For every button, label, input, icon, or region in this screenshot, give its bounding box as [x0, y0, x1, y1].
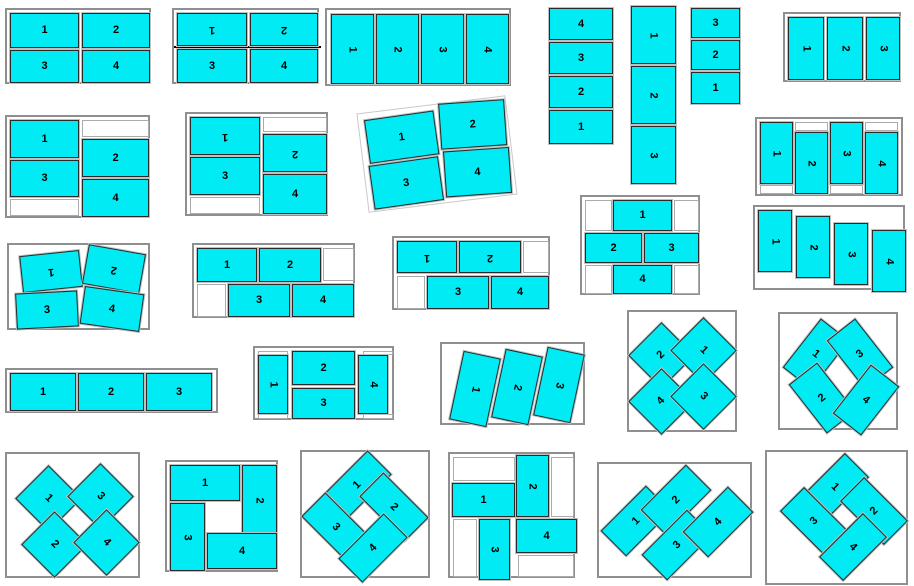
cell-number: 2	[840, 45, 851, 51]
layout-brick-offset-head-to-head[interactable]: 1234	[392, 236, 550, 310]
layout-cell: 4	[872, 230, 906, 292]
cell-number: 3	[176, 387, 182, 398]
layout-cell: 2	[796, 216, 830, 278]
cell-number: 4	[320, 295, 326, 306]
cell-number: 1	[630, 515, 642, 527]
layout-cell: 3	[170, 503, 205, 571]
layout-cell: 3	[292, 388, 355, 419]
cell-number: 4	[281, 61, 287, 72]
cell-number: 1	[41, 134, 47, 145]
cell-number: 1	[578, 122, 584, 133]
cell-number: 3	[878, 45, 889, 51]
layout-cell: 2	[250, 13, 318, 46]
layout-pinwheel-staggered[interactable]: 2134	[448, 452, 575, 578]
layout-cell: 2	[292, 351, 355, 385]
cell-number: 3	[330, 521, 342, 533]
layout-cell: 1	[452, 483, 515, 517]
cell-number: 1	[829, 481, 841, 493]
cell-number: 1	[41, 25, 47, 36]
empty-cell	[585, 200, 612, 231]
layout-diamond-quad-b[interactable]: 1324	[5, 452, 140, 578]
layout-cell: 1	[197, 248, 257, 282]
layout-cell: 1	[788, 17, 824, 80]
layout-cell: 1	[10, 120, 79, 158]
cell-number: 3	[808, 515, 820, 527]
cell-number: 1	[424, 252, 430, 263]
layout-cell: 3	[866, 17, 900, 80]
layout-cell: 2	[516, 455, 549, 517]
cell-number: 1	[268, 381, 279, 387]
cell-number: 2	[868, 505, 880, 517]
cell-number: 2	[712, 50, 718, 61]
layout-cell: 4	[358, 355, 388, 414]
cell-number: 2	[110, 263, 118, 275]
layout-2x2-jostled-head-to-head[interactable]: 1234	[7, 243, 150, 330]
layout-cell: 4	[80, 286, 145, 332]
layout-cell: 4	[263, 174, 327, 214]
layout-cell: 1	[10, 13, 79, 48]
layout-cell: 3	[549, 42, 613, 74]
cell-number: 4	[517, 287, 523, 298]
layout-cell: 1	[177, 13, 247, 46]
layout-preset-canvas: 1234123412344321123321123132413241234123…	[0, 0, 914, 586]
cell-number: 2	[388, 501, 400, 513]
layout-pinwheel[interactable]: 1234	[165, 460, 278, 572]
layout-2x2-grid[interactable]: 1234	[5, 8, 151, 84]
layout-cell: 2	[263, 134, 327, 172]
empty-cell	[585, 265, 612, 294]
layout-cell: 4	[833, 364, 900, 435]
layout-cell: 4	[549, 8, 613, 40]
cell-number: 2	[320, 363, 326, 374]
cell-number: 2	[48, 538, 60, 550]
cell-number: 2	[670, 494, 682, 506]
cell-number: 1	[770, 238, 781, 244]
layout-cell: 2	[438, 99, 507, 149]
layout-cell: 3	[427, 276, 489, 309]
layout-cell: 4	[207, 533, 277, 569]
cell-number: 3	[44, 304, 51, 315]
cell-number: 1	[639, 210, 645, 221]
empty-cell	[10, 199, 79, 216]
cell-number: 3	[41, 61, 47, 72]
cell-number: 4	[876, 160, 887, 166]
cell-number: 1	[202, 478, 208, 489]
layout-2col-staggered-head-to-head[interactable]: 1324	[185, 112, 328, 216]
empty-cell	[760, 185, 793, 194]
cell-number: 3	[841, 150, 852, 156]
cell-number: 1	[810, 348, 822, 360]
layout-cell: 4	[250, 49, 318, 83]
cell-number: 1	[480, 495, 486, 506]
cell-number: 4	[639, 274, 645, 285]
layout-brick-pyramid[interactable]: 1234	[580, 195, 700, 295]
layout-2col-staggered[interactable]: 1324	[5, 115, 150, 218]
layout-stack-3-rotated[interactable]: 123	[630, 4, 677, 186]
cell-number: 1	[47, 266, 54, 278]
cell-number: 4	[543, 531, 549, 542]
cell-number: 2	[806, 160, 817, 166]
cell-number: 4	[655, 395, 667, 407]
cell-number: 2	[487, 252, 493, 263]
layout-2x2-head-to-head[interactable]: 1234	[172, 8, 319, 84]
layout-cell: 1	[691, 72, 740, 104]
layout-cell: 3	[369, 156, 444, 209]
layout-3-across[interactable]: 123	[5, 368, 218, 413]
cell-number: 3	[854, 348, 866, 360]
layout-cell: 1	[549, 110, 613, 144]
cell-number: 3	[648, 152, 659, 158]
layout-cell: 4	[292, 284, 354, 317]
layout-cell: 4	[73, 509, 139, 575]
cell-number: 2	[655, 349, 667, 361]
empty-cell	[518, 555, 574, 577]
layout-cell: 4	[443, 147, 512, 197]
cell-number: 1	[712, 83, 718, 94]
cell-number: 4	[578, 19, 584, 30]
cell-number: 2	[113, 25, 119, 36]
layout-stack-4-reversed[interactable]: 4321	[548, 6, 614, 146]
layout-diamond-ring[interactable]: 1234	[300, 450, 430, 578]
layout-4-across-rotated[interactable]: 1234	[325, 8, 511, 86]
cell-number: 2	[112, 153, 118, 164]
cell-number: 3	[846, 251, 857, 257]
cell-number: 4	[847, 541, 859, 553]
layout-cell: 1	[397, 241, 457, 273]
layout-cell: 3	[228, 284, 290, 317]
layout-cell: 3	[631, 126, 676, 184]
empty-cell	[190, 197, 260, 214]
empty-cell	[197, 284, 226, 317]
empty-cell	[453, 457, 515, 481]
cell-number: 2	[469, 119, 476, 130]
layout-cell: 4	[82, 179, 149, 217]
cell-number: 3	[671, 539, 683, 551]
layout-cell: 1	[331, 14, 374, 84]
empty-cell	[674, 200, 699, 231]
layout-cell: 2	[82, 13, 150, 48]
cell-number: 2	[108, 387, 114, 398]
layout-cell: 2	[691, 40, 740, 70]
cell-number: 1	[42, 492, 54, 504]
empty-cell	[363, 414, 393, 419]
empty-cell	[258, 414, 288, 419]
empty-cell	[397, 276, 425, 309]
layout-cell: 2	[585, 233, 642, 263]
cell-number: 1	[222, 131, 228, 142]
cell-number: 3	[455, 287, 461, 298]
layout-h-frame[interactable]: 1234	[253, 346, 394, 420]
layout-3col-tilted[interactable]: 123	[440, 342, 585, 425]
layout-cell: 3	[644, 233, 699, 263]
layout-cell: 4	[516, 519, 577, 553]
cell-number: 3	[668, 243, 674, 254]
cell-number: 4	[860, 394, 872, 406]
layout-cell: 3	[834, 223, 868, 285]
cell-number: 4	[474, 166, 481, 177]
cell-number: 4	[884, 258, 895, 264]
cell-number: 2	[392, 46, 403, 52]
layout-cell: 1	[258, 355, 288, 414]
layout-cell: 4	[613, 265, 672, 294]
layout-cell: 2	[795, 132, 828, 194]
layout-cell: 2	[376, 14, 419, 84]
cell-number: 3	[256, 295, 262, 306]
layout-cell: 1	[760, 122, 793, 184]
layout-cell: 2	[78, 373, 144, 411]
layout-cell: 4	[491, 276, 549, 309]
cell-number: 3	[320, 398, 326, 409]
cell-number: 4	[292, 189, 298, 200]
layout-cell: 4	[82, 50, 150, 83]
cell-number: 3	[578, 53, 584, 64]
cell-number: 3	[222, 171, 228, 182]
cell-number: 2	[610, 243, 616, 254]
cell-number: 1	[469, 385, 481, 393]
layout-cell: 1	[170, 465, 240, 501]
empty-cell	[865, 122, 898, 131]
cell-number: 1	[351, 479, 363, 491]
empty-cell	[82, 120, 149, 137]
cell-number: 2	[808, 244, 819, 250]
cell-number: 4	[712, 516, 724, 528]
empty-cell	[674, 265, 699, 294]
cell-number: 1	[209, 24, 215, 35]
layout-cell: 4	[466, 14, 509, 84]
layout-cell: 3	[146, 373, 212, 411]
layout-cell: 2	[827, 17, 863, 80]
layout-x-weave[interactable]: 1324	[778, 312, 898, 430]
layout-cell: 4	[865, 132, 898, 194]
layout-cell: 1	[10, 373, 76, 411]
cell-number: 1	[648, 32, 659, 38]
empty-cell	[795, 122, 828, 131]
layout-cell: 3	[190, 157, 260, 195]
layout-stack-3-reversed[interactable]: 321	[690, 6, 741, 106]
layout-cell: 1	[631, 6, 676, 64]
layout-cell: 2	[242, 465, 277, 535]
cell-number: 4	[108, 303, 116, 315]
layout-cell: 3	[830, 122, 863, 184]
cell-number: 3	[712, 18, 718, 29]
layout-cell: 1	[364, 111, 439, 164]
cell-number: 2	[511, 383, 523, 391]
layout-cell: 3	[479, 519, 510, 580]
layout-cell: 2	[82, 139, 149, 177]
cell-number: 2	[578, 87, 584, 98]
cell-number: 2	[281, 24, 287, 35]
layout-4col-staircase[interactable]: 1234	[753, 205, 905, 290]
cell-number: 1	[697, 344, 709, 356]
layout-cell: 3	[10, 50, 79, 83]
cell-number: 1	[40, 387, 46, 398]
cell-number: 3	[41, 173, 47, 184]
cell-number: 2	[648, 92, 659, 98]
cell-number: 2	[816, 392, 828, 404]
cell-number: 2	[292, 148, 298, 159]
layout-cell: 2	[631, 66, 676, 124]
cell-number: 2	[527, 483, 538, 489]
cell-number: 4	[239, 546, 245, 557]
cell-number: 1	[801, 45, 812, 51]
cell-number: 4	[482, 46, 493, 52]
cell-number: 4	[112, 193, 118, 204]
layout-cell: 2	[459, 241, 521, 273]
empty-cell	[830, 185, 863, 194]
layout-cell: 3	[670, 363, 736, 429]
layout-cell: 1	[758, 210, 792, 272]
layout-4col-alternating[interactable]: 1234	[755, 117, 903, 196]
cell-number: 1	[771, 150, 782, 156]
layout-cell: 3	[421, 14, 464, 84]
layout-brick-offset[interactable]: 1234	[192, 243, 355, 318]
layout-cell: 2	[549, 76, 613, 108]
cell-number: 1	[347, 46, 358, 52]
cell-number: 4	[100, 536, 112, 548]
cell-number: 3	[182, 534, 193, 540]
layout-cell: 1	[190, 117, 260, 155]
layout-cell: 1	[613, 200, 672, 231]
layout-zigzag-diagonal[interactable]: 1234	[597, 462, 752, 578]
empty-cell	[523, 241, 549, 273]
cell-number: 1	[398, 131, 406, 143]
layout-cell: 3	[10, 160, 79, 197]
cell-number: 4	[367, 542, 379, 554]
cell-number: 3	[94, 490, 106, 502]
layout-2x2-tilted[interactable]: 1234	[356, 95, 517, 213]
cell-number: 3	[697, 390, 709, 402]
cell-number: 2	[287, 260, 293, 271]
empty-cell	[453, 519, 477, 577]
layout-cell: 3	[691, 8, 740, 38]
separator-line	[174, 46, 321, 48]
empty-cell	[551, 457, 574, 517]
cell-number: 3	[209, 61, 215, 72]
layout-cell: 3	[15, 290, 79, 329]
cell-number: 2	[254, 497, 265, 503]
layout-cell: 2	[259, 248, 321, 282]
cell-number: 3	[437, 46, 448, 52]
layout-x-pinwheel[interactable]: 1234	[765, 450, 908, 585]
cell-number: 4	[113, 61, 119, 72]
empty-cell	[263, 117, 327, 132]
cell-number: 3	[403, 177, 411, 189]
layout-diamond-quad[interactable]: 2143	[627, 310, 737, 432]
layout-cell: 1	[19, 250, 83, 293]
cell-number: 3	[553, 381, 565, 389]
cell-number: 1	[224, 260, 230, 271]
layout-cell: 3	[177, 49, 247, 83]
empty-cell	[323, 248, 354, 281]
layout-3-across-rotated[interactable]: 123	[783, 12, 901, 82]
cell-number: 3	[489, 546, 500, 552]
cell-number: 4	[368, 381, 379, 387]
